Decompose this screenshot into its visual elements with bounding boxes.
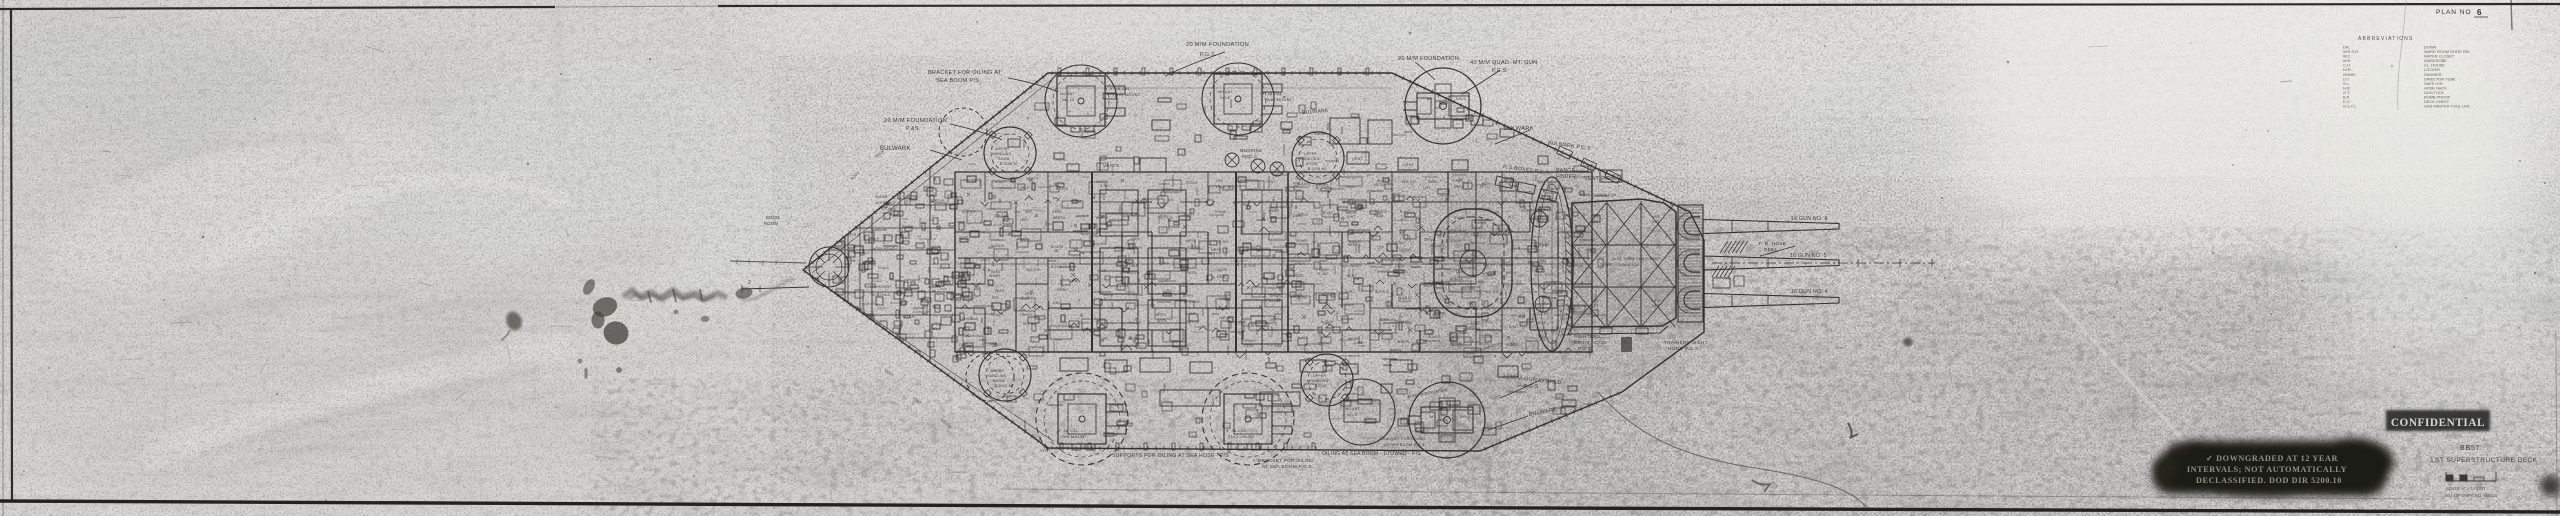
svg-text:B-510: B-510 [1345,290,1355,294]
svg-text:OFF.: OFF. [1377,246,1385,250]
svg-text:HATCH: HATCH [1399,248,1412,252]
svg-text:W.E.S.R.: W.E.S.R. [1375,290,1390,294]
svg-text:W.C.: W.C. [1184,343,1192,347]
svg-text:MT.: MT. [1430,415,1437,419]
svg-text:VENT: VENT [1352,157,1364,161]
svg-text:TWIN MOUNT: TWIN MOUNT [1112,92,1141,97]
svg-text:VENT: VENT [1347,274,1357,278]
svg-text:W.&S.R.: W.&S.R. [991,244,1005,248]
svg-text:B-510: B-510 [1318,272,1328,276]
svg-text:BULWARK: BULWARK [880,146,911,152]
svg-text:ROOM: ROOM [1315,384,1327,388]
svg-text:5" 38 CAL.: 5" 38 CAL. [1110,86,1132,91]
svg-text:BERTHS: BERTHS [930,199,945,203]
svg-text:SUPPORTS FOR OILING AT SEA HOS: SUPPORTS FOR OILING AT SEA HOSE - P/S [1112,453,1229,459]
svg-text:W.C.: W.C. [1480,184,1488,188]
svg-text:DBLE: DBLE [1456,342,1466,346]
svg-text:B-510½: B-510½ [1446,238,1462,243]
svg-text:MOORING: MOORING [1240,148,1262,153]
svg-text:16 GUN NO. 6: 16 GUN NO. 6 [1791,216,1828,222]
svg-text:W.E.S.R.: W.E.S.R. [1485,290,1500,294]
svg-text:B-0103: B-0103 [1396,270,1408,274]
svg-text:DESK: DESK [1052,210,1062,214]
svg-text:BERTH: BERTH [1127,271,1140,275]
svg-text:SHWR: SHWR [1296,239,1307,243]
svg-text:HOOD P.G.S.: HOOD P.G.S. [1668,346,1700,352]
svg-text:C.P.O.: C.P.O. [1536,338,1546,342]
svg-text:W.&S.R.: W.&S.R. [902,315,916,319]
svg-text:W.E.S.R.: W.E.S.R. [1511,314,1526,318]
svg-text:C.P.O.: C.P.O. [1565,265,1575,269]
svg-text:20 M/M FOUNDATION: 20 M/M FOUNDATION [1186,42,1249,48]
svg-text:BERTH: BERTH [1023,322,1036,326]
svg-text:W.&S.R.: W.&S.R. [1241,324,1255,328]
svg-text:VENT: VENT [1563,236,1573,240]
svg-text:PASS.: PASS. [1129,213,1139,217]
svg-text:MOUNT: MOUNT [1345,407,1361,411]
svg-text:SCALE ¼" = 1 FOOT: SCALE ¼" = 1 FOOT [2446,486,2486,491]
svg-text:SHWR: SHWR [1350,264,1361,268]
svg-text:W.E.S.R.: W.E.S.R. [1533,312,1548,316]
svg-text:WORKSHOP: WORKSHOP [870,285,892,289]
svg-text:ROOM: ROOM [1306,162,1318,166]
svg-text:PASS.: PASS. [1217,268,1227,272]
svg-text:W.R.: W.R. [1510,342,1518,346]
svg-text:TURRET FOUNDATION: TURRET FOUNDATION [1600,263,1639,267]
svg-text:DESK: DESK [1565,270,1575,274]
svg-text:W.R.S.R.: W.R.S.R. [846,233,861,237]
svg-text:VENT: VENT [1604,176,1616,180]
svg-text:BRTH: BRTH [1184,213,1194,217]
svg-text:16 GUN NO. 4: 16 GUN NO. 4 [1791,289,1828,295]
svg-text:B-510: B-510 [1400,210,1410,214]
svg-text:OFF.: OFF. [1101,337,1109,341]
svg-text:SHWR: SHWR [1185,312,1196,316]
svg-text:W.E.S.R.: W.E.S.R. [962,210,977,214]
svg-text:40 M.M.½: 40 M.M.½ [1448,229,1466,233]
svg-text:UPPER: UPPER [996,147,1009,151]
svg-text:BRTH: BRTH [964,296,974,300]
svg-text:MESS: MESS [1211,248,1222,252]
svg-text:16 IN. THREE GUN TURRET: 16 IN. THREE GUN TURRET [1612,257,1660,261]
svg-text:BRACKET FOR OILING AT: BRACKET FOR OILING AT [928,70,1002,76]
svg-text:OFF.: OFF. [1563,214,1571,218]
svg-text:HATCH: HATCH [1536,208,1549,212]
svg-text:5" 38 CAL.: 5" 38 CAL. [1262,91,1284,96]
svg-text:B-0103: B-0103 [1397,320,1409,324]
svg-text:OFF.: OFF. [1054,338,1062,342]
svg-text:W.R.: W.R. [1347,185,1355,189]
svg-text:W.&S.R.: W.&S.R. [1129,321,1143,325]
svg-text:B-510: B-510 [1395,241,1405,245]
svg-text:B-0103: B-0103 [1244,264,1256,268]
svg-text:RADAR: RADAR [875,195,888,199]
svg-text:LKR: LKR [1423,186,1430,190]
svg-text:B-0108-M: B-0108-M [1308,167,1325,171]
svg-text:HATCH: HATCH [1373,183,1386,187]
svg-text:REEL: REEL [1764,247,1778,253]
svg-text:OILING AT SEA BOOM - STOWED -: OILING AT SEA BOOM - STOWED - P/S [1322,451,1421,457]
svg-text:C.P.O.: C.P.O. [1163,289,1173,293]
svg-text:B-0108-M: B-0108-M [1000,162,1017,166]
svg-text:C.P.O.: C.P.O. [994,214,1004,218]
svg-text:B-5101: B-5101 [1450,277,1463,281]
svg-text:NO.3: NO.3 [1347,413,1357,417]
svg-text:AT SEA BOOM P.G.S.: AT SEA BOOM P.G.S. [1384,443,1426,447]
svg-text:BERTH: BERTH [1322,293,1335,297]
svg-text:GUN MOUNT: GUN MOUNT [1060,434,1087,439]
svg-text:W.&S.R.: W.&S.R. [1428,335,1442,339]
svg-text:PASS.: PASS. [1374,214,1384,218]
svg-text:16 GUN NO. 5: 16 GUN NO. 5 [1790,253,1827,259]
svg-text:20 M/M FOUNDATION: 20 M/M FOUNDATION [884,118,947,124]
svg-text:W.E.S.R.: W.E.S.R. [1402,180,1417,184]
svg-text:LKR: LKR [1216,179,1223,183]
svg-text:BU. OF SHIPS NO. 666610: BU. OF SHIPS NO. 666610 [2446,493,2498,498]
svg-text:W.&S.R.: W.&S.R. [1537,180,1551,184]
svg-text:P.G.S.: P.G.S. [1492,68,1508,74]
svg-text:W.C.: W.C. [1508,215,1516,219]
svg-text:BULWARK: BULWARK [1504,126,1534,132]
svg-text:NET: NET [1652,304,1660,308]
svg-text:WORKSHOP: WORKSHOP [875,201,897,205]
svg-text:P.G.S.: P.G.S. [1200,52,1217,58]
svg-text:PASS.: PASS. [959,236,969,240]
svg-text:W.E.S.R.: W.E.S.R. [1534,244,1549,248]
svg-text:BRTH: BRTH [1054,182,1064,186]
svg-text:BRTH: BRTH [1183,294,1193,298]
svg-text:LKR: LKR [1269,318,1276,322]
svg-text:B-0103: B-0103 [1321,320,1333,324]
svg-text:NO.4: NO.4 [1220,96,1230,100]
svg-text:PASS.: PASS. [1020,297,1030,301]
svg-text:T.B.: T.B. [1540,259,1547,263]
svg-text:F. D. HOSE: F. D. HOSE [1759,241,1786,247]
svg-text:VENT: VENT [1025,292,1035,296]
svg-text:HATCH: HATCH [1483,263,1496,267]
svg-text:POINTERS: POINTERS [1574,334,1601,340]
svg-text:MOUNT: MOUNT [1218,90,1234,94]
svg-text:W.R.: W.R. [1133,237,1141,241]
svg-text:B-0103-M: B-0103-M [995,384,1012,388]
svg-text:SEA BOOM P/S: SEA BOOM P/S [936,78,979,84]
svg-text:REELS: REELS [1242,154,1257,159]
svg-text:1 ST SUPERSTRUCTURE DECK: 1 ST SUPERSTRUCTURE DECK [2430,457,2538,464]
svg-text:P.G.S.: P.G.S. [1524,384,1540,390]
svg-text:BERTH: BERTH [902,225,915,229]
svg-text:B-0103: B-0103 [1399,299,1411,303]
svg-text:TRUNK: TRUNK [1188,300,1201,304]
svg-text:W.E.S.R.: W.E.S.R. [1159,216,1174,220]
svg-text:PASS.: PASS. [1097,269,1107,273]
svg-text:W.&S.R.: W.&S.R. [991,313,1005,317]
svg-text:MESS: MESS [1348,337,1359,341]
svg-text:UPPER: UPPER [991,369,1004,373]
svg-text:DBLE: DBLE [1129,264,1139,268]
svg-text:STOW: STOW [1186,181,1197,185]
svg-text:& STORES: & STORES [878,207,897,211]
svg-text:DBLE: DBLE [1053,301,1063,305]
svg-text:BB57: BB57 [2460,445,2480,452]
svg-text:SHWR: SHWR [1270,294,1281,298]
svg-text:MESS: MESS [1186,239,1197,243]
svg-text:B-510: B-510 [1051,265,1061,269]
svg-text:6: 6 [2477,8,2482,17]
svg-text:WORK BENCH: WORK BENCH [872,247,897,251]
svg-text:B-510: B-510 [1100,184,1110,188]
svg-text:TRUNK: TRUNK [959,266,972,270]
svg-text:PASS.: PASS. [995,289,1005,293]
svg-text:ROOM: ROOM [998,157,1010,161]
svg-text:TRUNK: TRUNK [1218,297,1231,301]
svg-text:ABBREVIATIONS: ABBREVIATIONS [2358,36,2414,42]
svg-text:C.P.O.: C.P.O. [1482,320,1492,324]
svg-text:VENT: VENT [1346,215,1356,219]
svg-text:TRUNK: TRUNK [1131,293,1144,297]
svg-text:VENT: VENT [1026,177,1036,181]
svg-text:BERTH: BERTH [1187,320,1200,324]
svg-text:VENT: VENT [1567,324,1577,328]
svg-text:BERTH: BERTH [1348,243,1361,247]
svg-text:AT SEA BOOM P.G.S.: AT SEA BOOM P.G.S. [1262,464,1314,470]
svg-text:DBLE: DBLE [1216,185,1226,189]
svg-text:MESS: MESS [1454,185,1465,189]
svg-text:5" 38 CAL.: 5" 38 CAL. [1058,428,1080,433]
svg-text:40 M/M QUAD. MT. GUN: 40 M/M QUAD. MT. GUN [1470,60,1537,66]
svg-text:BRACKET FOR OILING: BRACKET FOR OILING [1258,458,1314,464]
svg-text:BRACKET FOR OILING: BRACKET FOR OILING [1380,437,1425,441]
svg-text:VENT: VENT [1379,318,1389,322]
svg-text:W.R.: W.R. [1025,210,1033,214]
svg-text:STOW: STOW [1430,316,1441,320]
svg-text:VENT: VENT [1040,449,1051,453]
svg-text:TRUNK: TRUNK [1214,210,1227,214]
svg-text:BERTH: BERTH [1397,340,1410,344]
svg-text:BERTH: BERTH [1096,216,1109,220]
svg-text:SHWR: SHWR [1244,339,1255,343]
svg-text:TRUNK: TRUNK [1481,335,1494,339]
svg-text:BRTH: BRTH [1157,319,1167,323]
svg-text:UPPER: UPPER [1304,152,1317,156]
svg-text:NO.6: NO.6 [1456,97,1466,101]
svg-text:LIFE: LIFE [1591,299,1600,303]
svg-text:LKR: LKR [1537,266,1544,270]
svg-text:BOOM: BOOM [766,215,780,220]
svg-text:B-510: B-510 [1323,211,1333,215]
svg-text:B-0103: B-0103 [1051,245,1063,249]
svg-text:NET: NET [1591,220,1599,224]
svg-text:NET: NET [1591,304,1599,308]
svg-text:BRTH: BRTH [1297,296,1307,300]
svg-text:VENT: VENT [1403,163,1415,167]
svg-text:STOW: STOW [1245,246,1256,250]
svg-text:20MM FOUNDATION: 20MM FOUNDATION [1580,193,1617,197]
svg-text:MESS: MESS [1536,321,1547,325]
svg-text:LKR: LKR [1020,218,1027,222]
svg-text:LIFE: LIFE [1652,299,1661,303]
svg-text:DECLASSIFIED. DOD DIR 5200.10: DECLASSIFIED. DOD DIR 5200.10 [2196,476,2342,485]
svg-text:STOW: STOW [1269,299,1280,303]
svg-text:BERTH: BERTH [1053,216,1066,220]
svg-text:DBLE: DBLE [1020,186,1030,190]
svg-text:TRUNK: TRUNK [1453,216,1466,220]
svg-text:P.&S.: P.&S. [906,126,920,132]
svg-text:B-0103: B-0103 [1056,187,1068,191]
svg-text:HANDLING: HANDLING [992,152,1012,156]
svg-text:W.E.S.R.: W.E.S.R. [1482,272,1497,276]
svg-text:20 M/M FOUNDATION: 20 M/M FOUNDATION [1398,56,1459,62]
svg-text:W.C.: W.C. [1400,218,1408,222]
svg-text:MT.: MT. [1427,97,1434,101]
svg-text:HANDLING: HANDLING [1300,157,1320,161]
svg-text:SHWR: SHWR [1377,270,1388,274]
svg-text:PLAN NO: PLAN NO [2436,9,2472,16]
svg-text:HANDLING: HANDLING [1309,379,1329,383]
svg-text:C.P.O.: C.P.O. [1319,184,1329,188]
svg-text:W.R.: W.R. [989,342,997,346]
svg-text:2: 2 [748,280,751,286]
svg-text:NO.12: NO.12 [1062,98,1074,102]
svg-text:GAS MASTER TOOL LKR.: GAS MASTER TOOL LKR. [2424,104,2471,109]
svg-text:INTERVALS; NOT AUTOMATICALLY: INTERVALS; NOT AUTOMATICALLY [2187,465,2347,474]
svg-text:DBLE: DBLE [1293,214,1303,218]
svg-text:NET: NET [1652,220,1660,224]
svg-text:ROOM: ROOM [993,379,1005,383]
svg-text:SHWR: SHWR [989,274,1000,278]
svg-text:W.&S.R.: W.&S.R. [1273,245,1287,249]
svg-text:ROOM: ROOM [764,221,778,226]
svg-text:OFF.: OFF. [1535,216,1543,220]
svg-text:SHWR: SHWR [1268,209,1279,213]
svg-text:TRUNK: TRUNK [961,344,974,348]
svg-text:VENT: VENT [1266,180,1276,184]
svg-text:W.C.: W.C. [1294,184,1302,188]
svg-text:B-510: B-510 [1509,325,1519,329]
svg-text:B-510: B-510 [1219,240,1229,244]
svg-text:5" 38 CAL.: 5" 38 CAL. [1226,428,1248,433]
svg-text:BRTH: BRTH [1022,313,1032,317]
svg-text:B-510: B-510 [1482,207,1492,211]
svg-text:NO.5: NO.5 [1460,415,1470,419]
svg-text:D.C.: D.C. [872,279,879,283]
svg-text:HATCH: HATCH [1219,316,1232,320]
svg-text:DESK: DESK [1244,344,1254,348]
svg-text:DESK: DESK [1057,288,1067,292]
svg-text:SHWR: SHWR [1128,337,1139,341]
svg-text:BRTH: BRTH [1319,342,1329,346]
svg-text:LIFE: LIFE [1591,215,1600,219]
svg-text:W.E.S.R.: W.E.S.R. [1026,268,1041,272]
svg-text:G.S.T.L.: G.S.T.L. [2343,104,2357,109]
svg-text:BRTH: BRTH [1506,271,1516,275]
svg-text:P.G.S.: P.G.S. [1578,346,1592,351]
svg-text:PASS.: PASS. [846,259,856,263]
svg-text:W.E.S.R.: W.E.S.R. [1187,246,1202,250]
svg-text:LKR: LKR [930,327,937,331]
svg-text:DESK: DESK [1217,275,1227,279]
svg-text:MESS: MESS [1293,274,1304,278]
svg-text:TRAINERS SIGHT: TRAINERS SIGHT [1664,340,1708,346]
svg-text:DESK: DESK [1561,317,1571,321]
svg-text:DESK: DESK [1424,238,1434,242]
svg-text:✓ DOWNGRADED AT 12 YEAR: ✓ DOWNGRADED AT 12 YEAR [2206,454,2338,463]
svg-text:CONFIDENTIAL: CONFIDENTIAL [2391,417,2485,429]
svg-text:W.R.: W.R. [1298,262,1306,266]
svg-text:SHWR: SHWR [962,317,973,321]
svg-text:DESK: DESK [1395,264,1405,268]
svg-text:W.R.: W.R. [992,296,1000,300]
svg-text:MESS: MESS [1103,293,1114,297]
svg-text:BRTH: BRTH [1020,238,1030,242]
svg-text:TWIN MOUNT: TWIN MOUNT [1264,97,1293,102]
svg-text:ENCLOSURE: ENCLOSURE [1228,434,1255,439]
svg-text:B-510: B-510 [1423,262,1433,266]
svg-text:HANDLING: HANDLING [987,374,1007,378]
svg-text:PASS.: PASS. [1187,271,1197,275]
svg-text:VENTS: VENTS [1103,163,1120,168]
svg-text:BERTH: BERTH [1130,246,1143,250]
svg-text:B-510: B-510 [1506,178,1516,182]
svg-text:MOUNT: MOUNT [1060,92,1076,96]
svg-text:DESK: DESK [1428,180,1438,184]
svg-text:BRTH: BRTH [1156,313,1166,317]
svg-text:LIFE: LIFE [1652,215,1661,219]
svg-text:B-0113½-A: B-0113½-A [872,293,891,297]
svg-text:DESK: DESK [1456,270,1466,274]
svg-text:FINDER: FINDER [1556,174,1576,180]
svg-text:B-510: B-510 [995,180,1005,184]
svg-text:UPPER: UPPER [1313,374,1326,378]
svg-text:OFF.: OFF. [1453,313,1461,317]
svg-text:OFF.: OFF. [1453,179,1461,183]
